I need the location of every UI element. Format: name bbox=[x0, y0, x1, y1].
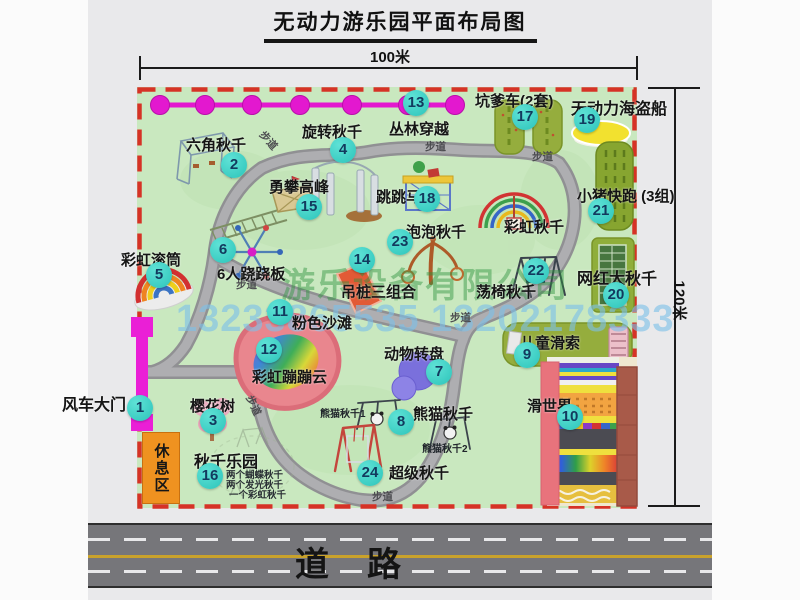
road-label: 道路 bbox=[88, 537, 608, 586]
phone-watermark: 13233865535 13202178333 bbox=[176, 298, 675, 341]
rest-area-label: 休息区 bbox=[151, 443, 172, 494]
label-six-person-seesaw: 6人跷跷板 bbox=[217, 263, 285, 284]
walkway-label: 步道 bbox=[372, 489, 393, 504]
badge-panda-swing: 8 bbox=[388, 409, 414, 435]
swing-park-note-3: 一个彩虹秋千 bbox=[229, 487, 286, 501]
badge-pink-beach: 11 bbox=[267, 299, 293, 325]
badge-piggy-run: 21 bbox=[588, 198, 614, 224]
badge-chair-swing: 22 bbox=[523, 258, 549, 284]
rest-area-box: 休息区 bbox=[142, 432, 180, 504]
badge-peak-climbing: 15 bbox=[296, 194, 322, 220]
badge-jumping-horse: 18 bbox=[414, 186, 440, 212]
label-super-swing: 超级秋千 bbox=[389, 462, 449, 483]
walkway-label: 步道 bbox=[532, 149, 553, 164]
label-rainbow-bounce-cloud: 彩虹蹦蹦云 bbox=[252, 366, 327, 387]
dimension-tick bbox=[648, 87, 700, 89]
badge-slide-world: 10 bbox=[557, 404, 583, 430]
badge-pirate-ship: 19 bbox=[574, 107, 600, 133]
dimension-tick bbox=[636, 56, 638, 80]
badge-big-swing: 20 bbox=[603, 282, 629, 308]
label-bubble-swing: 泡泡秋千 bbox=[406, 221, 466, 242]
label-rotating-swing: 旋转秋千 bbox=[302, 121, 362, 142]
walkway-label: 步道 bbox=[450, 310, 471, 325]
label-jungle-crossing: 丛林穿越 bbox=[389, 118, 449, 139]
dimension-tick bbox=[139, 56, 141, 80]
badge-hexagon-swing: 2 bbox=[221, 152, 247, 178]
badge-six-person-seesaw: 6 bbox=[210, 237, 236, 263]
badge-bubble-swing: 23 bbox=[387, 229, 413, 255]
badge-pit-car: 17 bbox=[512, 104, 538, 130]
label-rainbow-swing: 彩虹秋千 bbox=[504, 216, 564, 237]
badge-animal-carousel: 7 bbox=[426, 359, 452, 385]
dimension-width-label: 100米 bbox=[362, 46, 418, 67]
badge-rainbow-bounce-cloud: 12 bbox=[256, 337, 282, 363]
label-peak-climbing: 勇攀高峰 bbox=[269, 176, 329, 197]
badge-rainbow-roller: 5 bbox=[146, 262, 172, 288]
badge-super-swing: 24 bbox=[357, 460, 383, 486]
walkway-label: 步道 bbox=[425, 139, 446, 154]
dimension-tick bbox=[648, 505, 700, 507]
label-pink-beach: 粉色沙滩 bbox=[292, 312, 352, 333]
page-title: 无动力游乐园平面布局图 bbox=[0, 6, 800, 43]
label-panda-swing-2: 熊猫秋千2 bbox=[422, 440, 468, 455]
badge-hanging-post-combo: 14 bbox=[349, 247, 375, 273]
label-chair-swing: 荡椅秋千 bbox=[476, 281, 536, 302]
dimension-line-top bbox=[140, 67, 637, 69]
badge-cherry-tree: 3 bbox=[200, 408, 226, 434]
label-panda-swing: 熊猫秋千 bbox=[413, 403, 473, 424]
badge-jungle-crossing: 13 bbox=[403, 90, 429, 116]
playground-plan-image: 无动力游乐园平面布局图 100米 120米 bbox=[0, 0, 800, 600]
road: 道路 bbox=[88, 523, 712, 588]
badge-kids-zipline: 9 bbox=[514, 342, 540, 368]
badge-rotating-swing: 4 bbox=[330, 137, 356, 163]
label-hanging-post-combo: 吊桩三组合 bbox=[341, 281, 416, 302]
badge-swing-park: 16 bbox=[197, 463, 223, 489]
badge-windmill-gate: 1 bbox=[127, 395, 153, 421]
label-windmill-gate: 风车大门 bbox=[62, 391, 126, 415]
label-panda-swing-1: 熊猫秋千1 bbox=[320, 405, 366, 420]
